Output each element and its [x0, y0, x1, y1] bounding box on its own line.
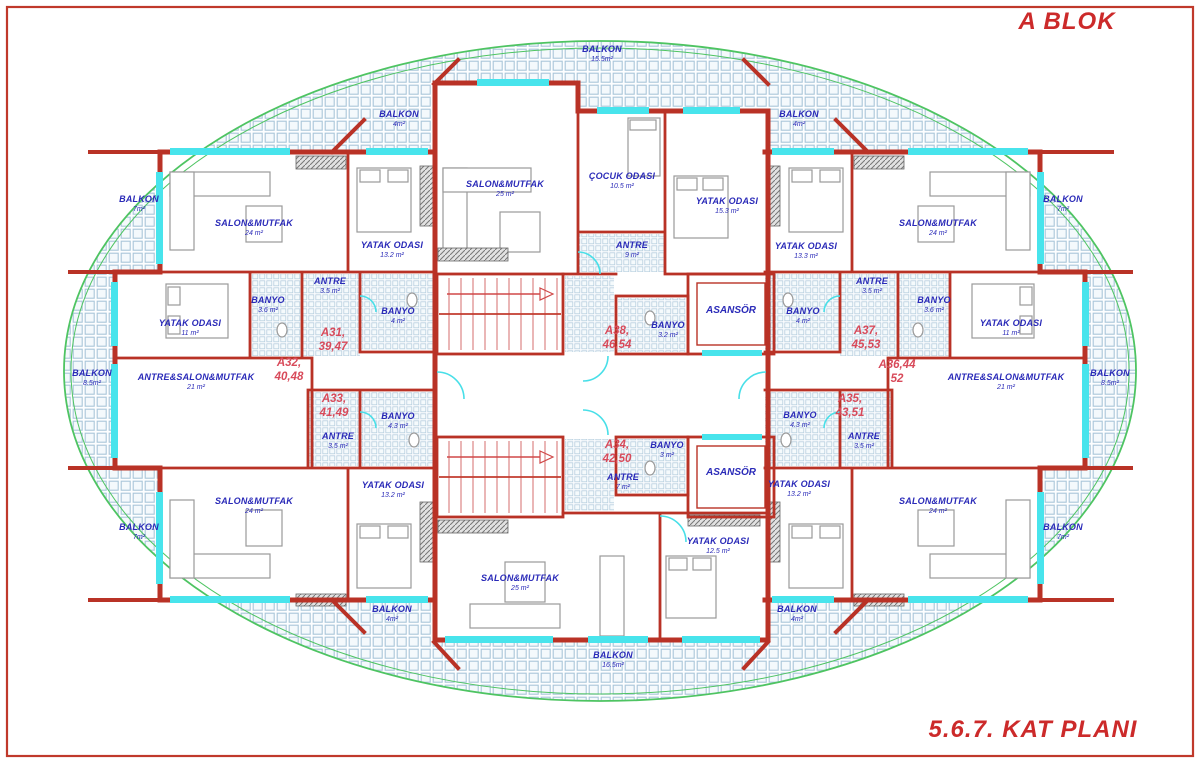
floor-plan-canvas: BALKON 15.5m² BALKON 4m² BALKON 4m² BALK… [0, 0, 1200, 763]
floorplan-drawing [0, 0, 1200, 763]
